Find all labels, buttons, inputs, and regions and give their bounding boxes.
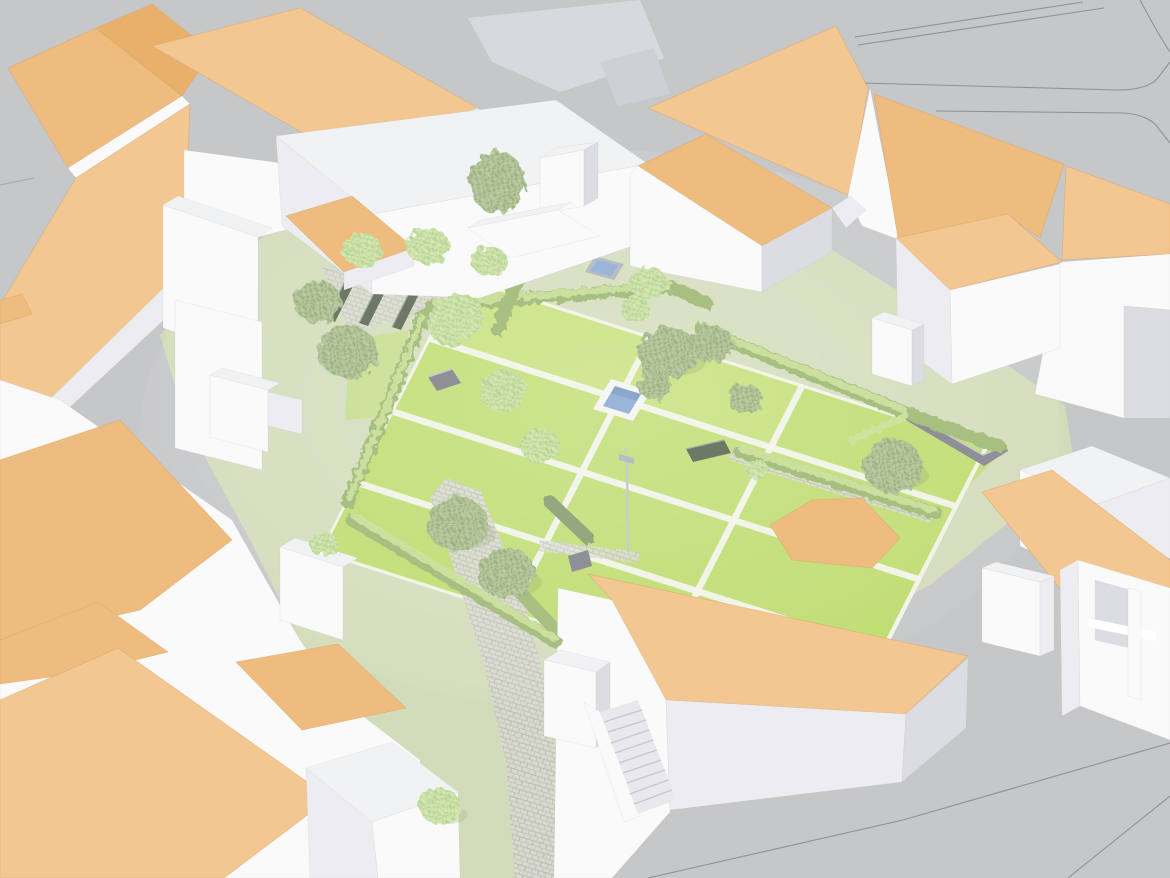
site-model-render — [0, 0, 1170, 878]
tree — [472, 247, 508, 277]
shrub — [419, 788, 461, 824]
tree — [637, 370, 673, 400]
tree — [429, 311, 471, 345]
ivy-arch — [469, 151, 525, 213]
tree — [690, 325, 734, 363]
tree — [406, 228, 450, 264]
tree — [520, 429, 560, 463]
tree — [309, 532, 337, 556]
tree — [638, 327, 698, 379]
tree — [342, 233, 382, 267]
tree — [745, 460, 769, 480]
scene-canvas — [0, 0, 1170, 878]
tree — [629, 267, 667, 299]
tree — [479, 371, 527, 411]
tree — [477, 548, 535, 598]
tree — [727, 384, 763, 414]
tree — [318, 326, 378, 378]
tree — [863, 439, 923, 493]
tree — [426, 497, 488, 551]
tree — [294, 281, 342, 323]
tree — [620, 296, 650, 322]
